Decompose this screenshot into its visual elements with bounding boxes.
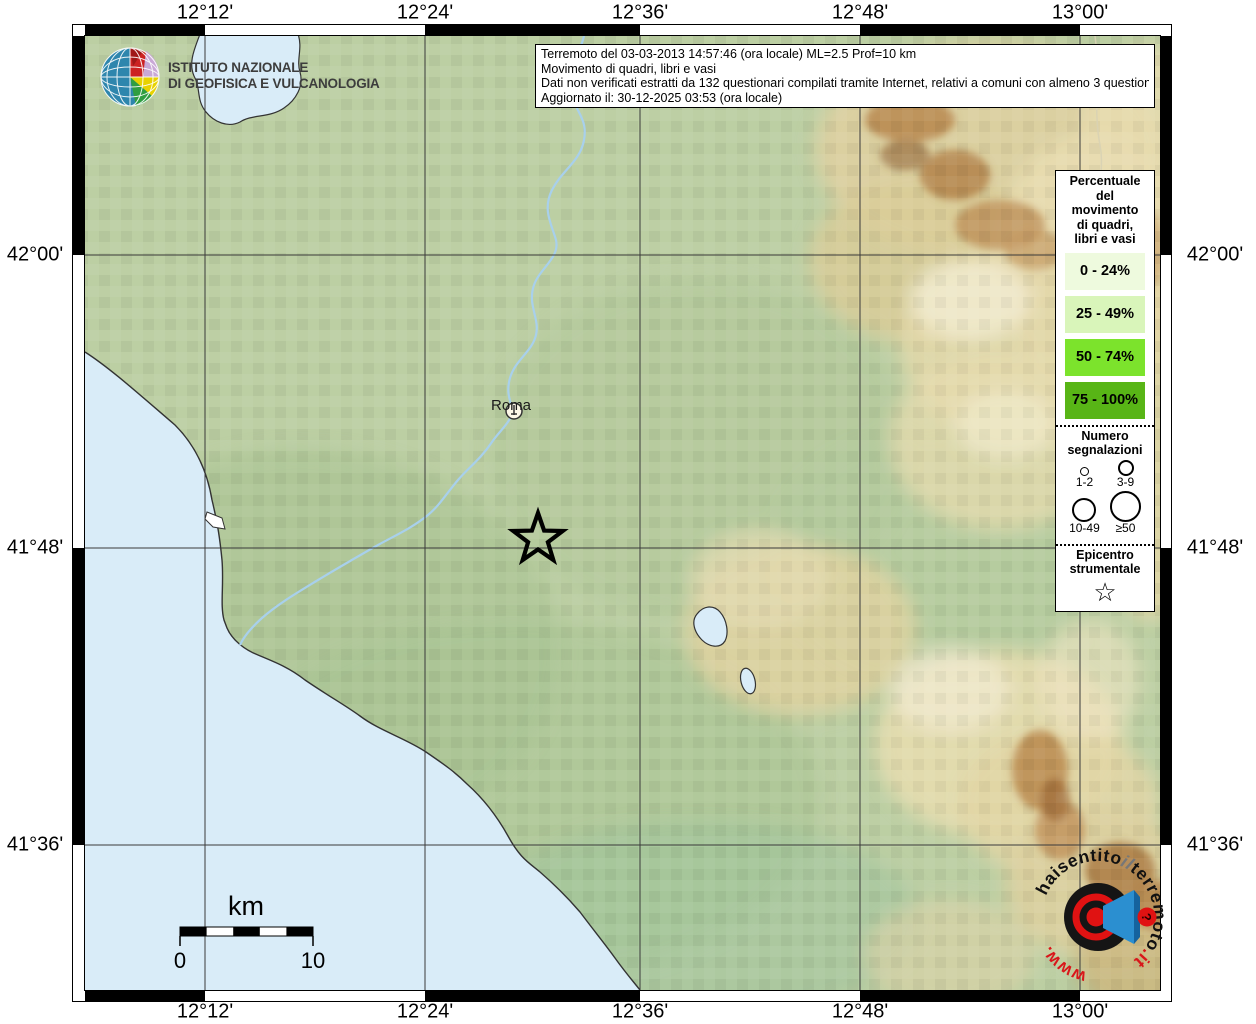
size-label-1-2: 1-2 xyxy=(1076,476,1093,489)
axis-label-right-1: 42°00' xyxy=(1187,244,1243,267)
info-line-updated: Aggiornato il: 30-12-2025 03:53 (ora loc… xyxy=(541,91,1149,106)
axis-label-left-3: 41°36' xyxy=(7,834,63,857)
axis-label-bottom-1: 12°12' xyxy=(177,1001,233,1024)
size-circle-3-9 xyxy=(1118,460,1134,476)
size-label-3-9: 3-9 xyxy=(1117,476,1134,489)
info-line-event: Terremoto del 03-03-2013 14:57:46 (ora l… xyxy=(541,47,1149,62)
size-circle-10-49 xyxy=(1072,498,1096,522)
legend-class-1: 25 - 49% xyxy=(1065,296,1145,333)
axis-label-left-2: 41°48' xyxy=(7,537,63,560)
axis-label-top-1: 12°12' xyxy=(177,2,233,25)
axis-label-top-2: 12°24' xyxy=(397,2,453,25)
legend-separator-1 xyxy=(1056,425,1154,427)
ingv-name-line2: DI GEOFISICA E VULCANOLOGIA xyxy=(168,76,380,92)
legend-separator-2 xyxy=(1056,544,1154,546)
scale-start: 0 xyxy=(174,948,186,973)
legend-class-0: 0 - 24% xyxy=(1065,253,1145,290)
legend-epicentro-title: Epicentro strumentale xyxy=(1056,548,1154,577)
legend-numero-title: Numero segnalazioni xyxy=(1056,429,1154,458)
info-line-data: Dati non verificati estratti da 132 ques… xyxy=(541,76,1149,91)
map-page: Roma km 0 10 xyxy=(0,0,1256,1024)
legend-percent-title: Percentuale del movimento di quadri, lib… xyxy=(1056,171,1154,247)
size-label-10-49: 10-49 xyxy=(1069,522,1100,535)
ingv-name-line1: ISTITUTO NAZIONALE xyxy=(168,60,380,76)
axis-label-right-2: 41°48' xyxy=(1187,537,1243,560)
info-line-movement: Movimento di quadri, libri e vasi xyxy=(541,62,1149,77)
axis-label-bottom-4: 12°48' xyxy=(832,1001,888,1024)
ingv-logo xyxy=(101,48,159,106)
axis-label-bottom-3: 12°36' xyxy=(612,1001,668,1024)
axis-label-bottom-5: 13°00' xyxy=(1052,1001,1108,1024)
axis-label-bottom-2: 12°24' xyxy=(397,1001,453,1024)
axis-label-top-4: 12°48' xyxy=(832,2,888,25)
legend-box: Percentuale del movimento di quadri, lib… xyxy=(1055,170,1155,612)
legend-star-icon: ☆ xyxy=(1056,577,1154,611)
legend-class-3: 75 - 100% xyxy=(1065,382,1145,419)
size-circle-50plus xyxy=(1110,491,1141,522)
scale-end: 10 xyxy=(301,948,325,973)
earthquake-info-box: Terremoto del 03-03-2013 14:57:46 (ora l… xyxy=(535,44,1155,108)
axis-label-left-1: 42°00' xyxy=(7,244,63,267)
ingv-name: ISTITUTO NAZIONALE DI GEOFISICA E VULCAN… xyxy=(168,60,380,92)
size-label-50plus: ≥50 xyxy=(1115,522,1135,535)
scale-unit: km xyxy=(228,891,264,921)
roma-label: Roma xyxy=(491,397,532,414)
legend-class-2: 50 - 74% xyxy=(1065,339,1145,376)
axis-label-right-3: 41°36' xyxy=(1187,834,1243,857)
axis-label-top-5: 13°00' xyxy=(1052,2,1108,25)
axis-label-top-3: 12°36' xyxy=(612,2,668,25)
